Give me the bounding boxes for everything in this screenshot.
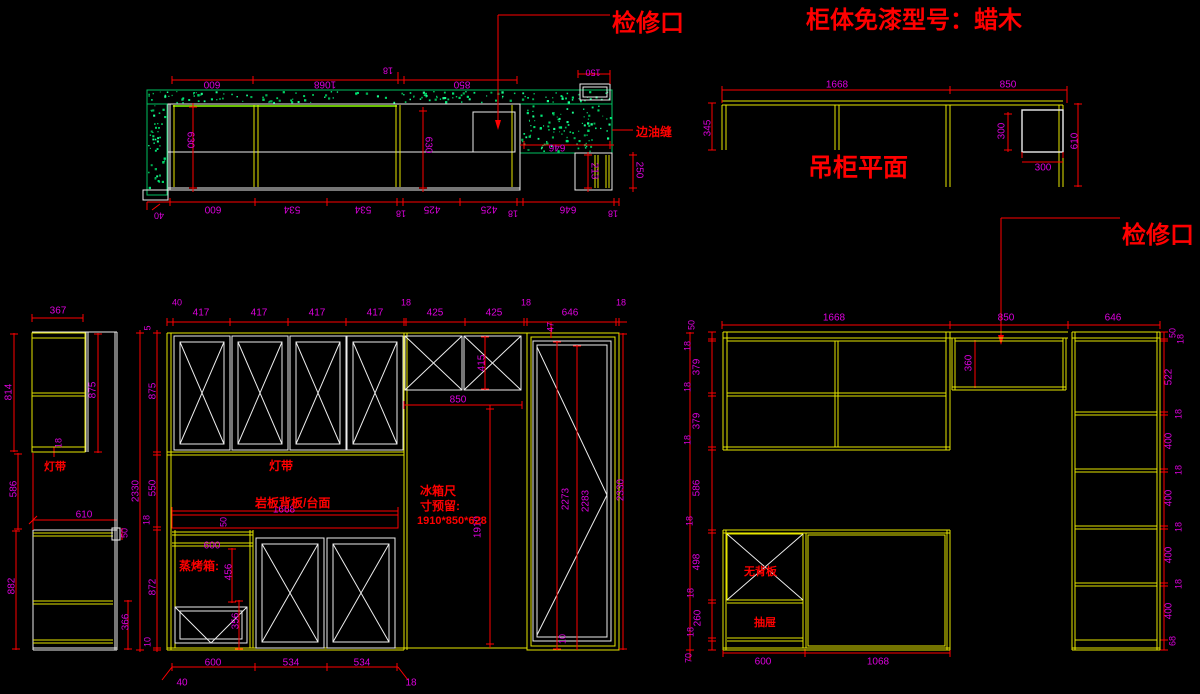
- dimension-label: 646: [562, 308, 579, 319]
- stone-speckle: [159, 145, 160, 146]
- dimension-label: 367: [50, 306, 67, 317]
- stone-speckle: [530, 125, 531, 126]
- stone-speckle: [150, 135, 151, 136]
- right-elevation: [686, 321, 1168, 660]
- stone-speckle: [532, 115, 534, 117]
- stone-speckle: [590, 146, 592, 148]
- stone-speckle: [283, 91, 285, 93]
- tall-cabinet: [527, 333, 619, 650]
- dimension-label: 18: [396, 209, 406, 219]
- stone-speckle: [403, 94, 404, 95]
- stone-speckle: [546, 141, 547, 142]
- upper-doors: [174, 336, 403, 450]
- stone-speckle: [265, 94, 267, 96]
- stone-speckle: [444, 92, 446, 94]
- stone-speckle: [572, 99, 574, 101]
- stone-speckle: [331, 91, 332, 92]
- stone-speckle: [527, 97, 529, 99]
- stone-speckle: [527, 112, 529, 114]
- backsplash-strip: [172, 515, 398, 528]
- stone-speckle: [566, 137, 567, 138]
- stone-speckle: [151, 131, 153, 133]
- dimension-label: 5: [142, 325, 152, 330]
- stone-speckle: [568, 124, 570, 126]
- dimension-label: 586: [692, 479, 703, 496]
- cad-drawing-canvas: 6001068188501506306306462132504060053453…: [0, 0, 1200, 694]
- stone-speckle: [567, 121, 569, 123]
- dimension-label: 534: [283, 203, 300, 214]
- stone-speckle: [420, 98, 422, 100]
- stone-speckle: [410, 92, 412, 94]
- dimension-label: 1068: [313, 78, 336, 89]
- dimension-label: 50: [686, 320, 696, 330]
- stone-speckle: [602, 116, 603, 117]
- stone-speckle: [413, 96, 414, 97]
- stone-speckle: [152, 139, 154, 141]
- dimension-label: 18: [682, 382, 692, 392]
- stone-speckle: [304, 99, 306, 101]
- stone-speckle: [534, 120, 535, 121]
- stone-speckle: [276, 97, 278, 99]
- dimension-label: 600: [203, 78, 220, 89]
- dimension-label: 630: [422, 137, 433, 154]
- dimension-label: 646: [1105, 313, 1122, 324]
- stone-speckle: [588, 125, 590, 127]
- stone-speckle: [216, 99, 217, 100]
- stone-speckle: [310, 102, 311, 103]
- stone-speckle: [262, 99, 264, 101]
- stone-speckle: [586, 146, 587, 147]
- stone-speckle: [148, 145, 149, 146]
- dimension-label: 150: [585, 68, 600, 78]
- stone-speckle: [465, 91, 466, 92]
- dimension-label: 1068: [867, 657, 890, 668]
- stone-speckle: [567, 108, 569, 110]
- stone-speckle: [587, 130, 589, 132]
- stone-speckle: [231, 94, 233, 96]
- dimension-label: 534: [354, 203, 371, 214]
- stone-speckle: [188, 99, 190, 101]
- stone-speckle: [501, 91, 503, 93]
- stone-speckle: [543, 150, 545, 152]
- stone-speckle: [405, 101, 407, 103]
- stone-speckle: [201, 93, 203, 95]
- stone-speckle: [533, 126, 535, 128]
- dimension-label: 18: [508, 209, 518, 219]
- dimension-label: 814: [4, 383, 15, 400]
- dimension-label: 400: [1164, 432, 1175, 449]
- dimension-label: 18: [685, 588, 695, 598]
- stone-speckle: [559, 121, 560, 122]
- stone-speckle: [155, 178, 157, 180]
- access-port-cutout: [473, 112, 515, 152]
- stone-speckle: [250, 96, 252, 98]
- stone-speckle: [223, 93, 224, 94]
- stone-speckle: [219, 98, 220, 99]
- dimension-label: 600: [205, 658, 222, 669]
- stone-speckle: [413, 97, 414, 98]
- stone-speckle: [156, 175, 158, 177]
- dimension-label: 646: [548, 141, 565, 152]
- stone-speckle: [527, 110, 529, 112]
- stone-speckle: [559, 131, 560, 132]
- stone-speckle: [588, 119, 589, 120]
- stone-speckle: [525, 136, 527, 138]
- dimension-label: 356: [231, 612, 242, 629]
- stone-speckle: [561, 95, 563, 97]
- fridge-note-line3: 1910*850*628: [417, 515, 487, 527]
- stone-speckle: [155, 127, 157, 129]
- dimension-label: 18: [608, 209, 618, 219]
- dimension-label: 1668: [823, 313, 846, 324]
- stone-speckle: [580, 101, 582, 103]
- stone-speckle: [325, 94, 327, 96]
- dimension-label: 18: [53, 438, 63, 448]
- drawer-note: 抽屉: [754, 615, 776, 629]
- dimension-label: 18: [1173, 409, 1183, 419]
- stone-speckle: [157, 148, 159, 150]
- stone-speckle: [242, 101, 243, 102]
- stone-speckle: [151, 164, 153, 166]
- stone-speckle: [523, 133, 525, 135]
- stone-speckle: [532, 98, 534, 100]
- stone-speckle: [552, 97, 553, 98]
- stone-speckle: [560, 114, 561, 115]
- stone-speckle: [164, 116, 166, 118]
- dimension-label: 610: [76, 510, 93, 521]
- stone-speckle: [530, 130, 532, 132]
- stone-speckle: [157, 137, 159, 139]
- dimension-label: 425: [423, 203, 440, 214]
- stone-speckle: [155, 168, 157, 170]
- stone-speckle: [589, 140, 590, 141]
- stone-speckle: [589, 91, 591, 93]
- stone-speckle: [216, 91, 218, 93]
- dimension-label: 1668: [826, 80, 849, 91]
- stone-speckle: [591, 123, 593, 125]
- stone-speckle: [385, 97, 387, 99]
- stone-speckle: [182, 97, 184, 99]
- dimension-label: 850: [450, 395, 467, 406]
- dimension-label: 610: [1070, 132, 1081, 149]
- dimension-label: 850: [1000, 80, 1017, 91]
- stone-speckle: [562, 98, 564, 100]
- stone-speckle: [463, 92, 465, 94]
- dimension-label: 300: [1035, 163, 1052, 174]
- stone-speckle: [587, 112, 588, 113]
- stone-speckle: [595, 128, 597, 130]
- stone-speckle: [452, 92, 454, 94]
- dimension-label: 47: [545, 322, 555, 332]
- stone-speckle: [578, 98, 579, 99]
- stone-speckle: [474, 92, 476, 94]
- dimension-label: 213: [588, 163, 599, 180]
- stone-speckle: [579, 140, 581, 142]
- stone-speckle: [196, 92, 197, 93]
- hanging-plan-title: 吊柜平面: [808, 154, 908, 182]
- stone-speckle: [588, 115, 590, 117]
- stone-speckle: [589, 151, 591, 153]
- dimension-label: 18: [141, 515, 151, 525]
- leader-arrow-1: [495, 120, 501, 130]
- light-strip-note-main: 灯带: [269, 458, 293, 473]
- dimension-label: 18: [685, 627, 695, 637]
- stone-speckle: [461, 101, 462, 102]
- stone-speckle: [553, 132, 554, 133]
- dimension-label: 18: [616, 297, 626, 307]
- stone-speckle: [541, 147, 543, 149]
- main-elevation: [136, 318, 627, 680]
- stone-speckle: [510, 100, 512, 102]
- stone-speckle: [533, 105, 535, 107]
- stone-speckle: [246, 95, 248, 97]
- right-dim-lines: [686, 321, 1168, 660]
- dimension-label: 68: [1167, 636, 1177, 646]
- stone-speckle: [152, 135, 154, 137]
- plan-dim-lines: [147, 70, 637, 210]
- dimension-label: 875: [88, 381, 99, 398]
- dimension-label: 2273: [561, 487, 572, 510]
- dimension-label: 600: [755, 657, 772, 668]
- stone-speckle: [204, 100, 206, 102]
- stone-speckle: [545, 97, 546, 98]
- stone-speckle: [425, 93, 427, 95]
- stone-speckle: [564, 130, 565, 131]
- dimension-label: 18: [682, 435, 692, 445]
- stone-speckle: [572, 132, 574, 134]
- stone-speckle: [522, 141, 523, 142]
- access-port-label-2: 检修口: [1122, 221, 1194, 249]
- stone-speckle: [164, 96, 166, 98]
- stone-speckle: [553, 114, 555, 116]
- stone-speckle: [333, 97, 334, 98]
- stone-speckle: [495, 100, 497, 102]
- stone-speckle: [151, 99, 153, 101]
- stone-speckle: [155, 150, 157, 152]
- stone-speckle: [491, 92, 492, 93]
- stone-speckle: [592, 107, 594, 109]
- stone-speckle: [198, 100, 200, 102]
- stone-speckle: [557, 117, 558, 118]
- access-port-label-1: 检修口: [612, 9, 684, 37]
- stone-speckle: [534, 93, 535, 94]
- stone-speckle: [486, 95, 487, 96]
- stone-speckle: [552, 136, 554, 138]
- dimension-label: 646: [559, 203, 576, 214]
- dimension-label: 850: [453, 78, 470, 89]
- stone-speckle: [193, 92, 195, 94]
- dimension-label: 379: [692, 412, 703, 429]
- stone-speckle: [445, 101, 447, 103]
- dimension-label: 586: [9, 480, 20, 497]
- stone-speckle: [151, 111, 152, 112]
- stone-speckle: [584, 124, 586, 126]
- stone-speckle: [538, 138, 540, 140]
- stone-speckle: [584, 116, 585, 117]
- stone-speckle: [154, 105, 155, 106]
- dimension-label: 50: [119, 528, 129, 538]
- stone-speckle: [578, 148, 580, 150]
- stone-speckle: [572, 97, 574, 99]
- light-strip-note-side: 灯带: [44, 459, 66, 473]
- fridge-note-line1: 冰箱尺: [420, 483, 456, 498]
- dimension-label: 2330: [131, 479, 142, 502]
- dimension-label: 498: [692, 553, 703, 570]
- dimension-label: 379: [692, 358, 703, 375]
- stone-speckle: [444, 97, 446, 99]
- stone-speckle: [423, 92, 425, 94]
- dimension-label: 70: [683, 653, 693, 663]
- dimension-label: 2330: [616, 478, 627, 501]
- dimension-label: 400: [1164, 602, 1175, 619]
- stone-speckle: [157, 131, 158, 132]
- base-doors: [256, 538, 395, 648]
- stone-speckle: [279, 100, 281, 102]
- dimension-label: 600: [204, 541, 221, 552]
- stone-speckle: [328, 97, 330, 99]
- side-dim-lines: [10, 314, 132, 650]
- fridge-upper-cabinets: [405, 336, 521, 390]
- stone-speckle: [584, 134, 586, 136]
- dimension-label: 425: [486, 308, 503, 319]
- stone-speckle: [609, 124, 611, 126]
- leader-arrow-2: [998, 335, 1004, 345]
- stone-speckle: [158, 181, 160, 183]
- stone-speckle: [598, 106, 600, 108]
- stone-speckle: [527, 149, 529, 151]
- stone-speckle: [150, 148, 151, 149]
- dimension-label: 417: [367, 308, 384, 319]
- stone-speckle: [148, 172, 150, 174]
- stone-speckle: [585, 147, 587, 149]
- side-elevation: [10, 314, 132, 650]
- dimension-label: 2283: [581, 489, 592, 512]
- dimension-label: 260: [693, 609, 704, 626]
- stone-speckle: [433, 91, 434, 92]
- stone-speckle: [167, 92, 169, 94]
- stone-speckle: [529, 120, 530, 121]
- stone-speckle: [447, 99, 449, 101]
- dimension-label: 456: [224, 563, 235, 580]
- stone-speckle: [514, 93, 516, 95]
- stone-speckle: [522, 99, 524, 101]
- slab-backboard-note: 岩板背板/台面: [254, 495, 330, 510]
- stone-speckle: [467, 96, 469, 98]
- dimension-label: 850: [998, 313, 1015, 324]
- stone-speckle: [426, 96, 427, 97]
- edge-seam-note: 边油缝: [635, 124, 672, 139]
- stone-speckle: [587, 122, 589, 124]
- dimension-label: 18: [682, 341, 692, 351]
- right-carcass: [723, 332, 1160, 650]
- stone-speckle: [597, 109, 599, 111]
- stone-speckle: [164, 158, 166, 160]
- stone-speckle: [456, 96, 457, 97]
- dimension-label: 875: [148, 382, 159, 399]
- dimension-label: 534: [283, 658, 300, 669]
- stone-speckle: [565, 98, 567, 100]
- stone-speckle: [194, 95, 196, 97]
- stone-speckle: [572, 112, 574, 114]
- stone-speckle: [163, 109, 165, 111]
- stone-speckle: [553, 101, 554, 102]
- stone-speckle: [172, 95, 173, 96]
- dimension-label: 18: [401, 297, 411, 307]
- stone-speckle: [606, 130, 608, 132]
- stone-speckle: [461, 95, 463, 97]
- stone-speckle: [159, 137, 161, 139]
- dimension-label: 417: [309, 308, 326, 319]
- stone-speckle: [607, 137, 609, 139]
- dimension-label: 600: [204, 203, 221, 214]
- dimension-label: 40: [154, 211, 164, 221]
- stone-speckle: [160, 92, 161, 93]
- stone-speckle: [312, 94, 314, 96]
- dimension-label: 18: [684, 516, 694, 526]
- stone-speckle: [556, 92, 557, 93]
- stone-speckle: [469, 98, 471, 100]
- stone-speckle: [578, 94, 579, 95]
- dimension-label: 400: [1164, 546, 1175, 563]
- stone-speckle: [237, 96, 238, 97]
- stone-speckle: [568, 101, 570, 103]
- dimension-label: 425: [480, 203, 497, 214]
- stone-speckle: [561, 133, 562, 134]
- stone-speckle: [591, 139, 592, 140]
- stone-speckle: [521, 139, 523, 141]
- dimension-label: 50: [218, 517, 228, 527]
- stone-speckle: [355, 92, 357, 94]
- stone-speckle: [262, 97, 264, 99]
- stone-speckle: [149, 96, 150, 97]
- stone-speckle: [436, 96, 437, 97]
- stone-speckle: [401, 93, 403, 95]
- stone-speckle: [155, 139, 157, 141]
- stone-speckle: [211, 98, 213, 100]
- stone-speckle: [567, 93, 569, 95]
- stone-speckle: [502, 97, 503, 98]
- stone-speckle: [600, 128, 601, 129]
- dimension-label: 417: [193, 308, 210, 319]
- stone-speckle: [586, 143, 587, 144]
- stone-speckle: [525, 96, 526, 97]
- stone-speckle: [583, 109, 584, 110]
- stone-speckle: [522, 92, 524, 94]
- stone-speckle: [161, 123, 163, 125]
- stone-speckle: [540, 127, 542, 129]
- stone-speckle: [291, 101, 293, 103]
- dimension-label: 630: [184, 132, 195, 149]
- fridge-note-line2: 寸预留:: [420, 498, 460, 513]
- dimension-label: 18: [383, 66, 393, 76]
- stone-speckle: [481, 102, 482, 103]
- stone-speckle: [436, 97, 438, 99]
- dimension-label: 250: [633, 162, 644, 179]
- steam-oven-note: 蒸烤箱:: [179, 558, 219, 573]
- stone-speckle: [606, 118, 607, 119]
- no-backboard-note: 无背板: [743, 564, 778, 578]
- dimension-label: 18: [1173, 465, 1183, 475]
- dimension-label: 872: [148, 578, 159, 595]
- dimension-label: 40: [172, 297, 182, 307]
- stone-speckle: [154, 123, 156, 125]
- stone-speckle: [574, 137, 576, 139]
- dimension-label: 534: [354, 658, 371, 669]
- stone-speckle: [176, 91, 177, 92]
- stone-speckle: [270, 100, 272, 102]
- stone-speckle: [153, 142, 155, 144]
- hanging-access-port: [1022, 110, 1063, 152]
